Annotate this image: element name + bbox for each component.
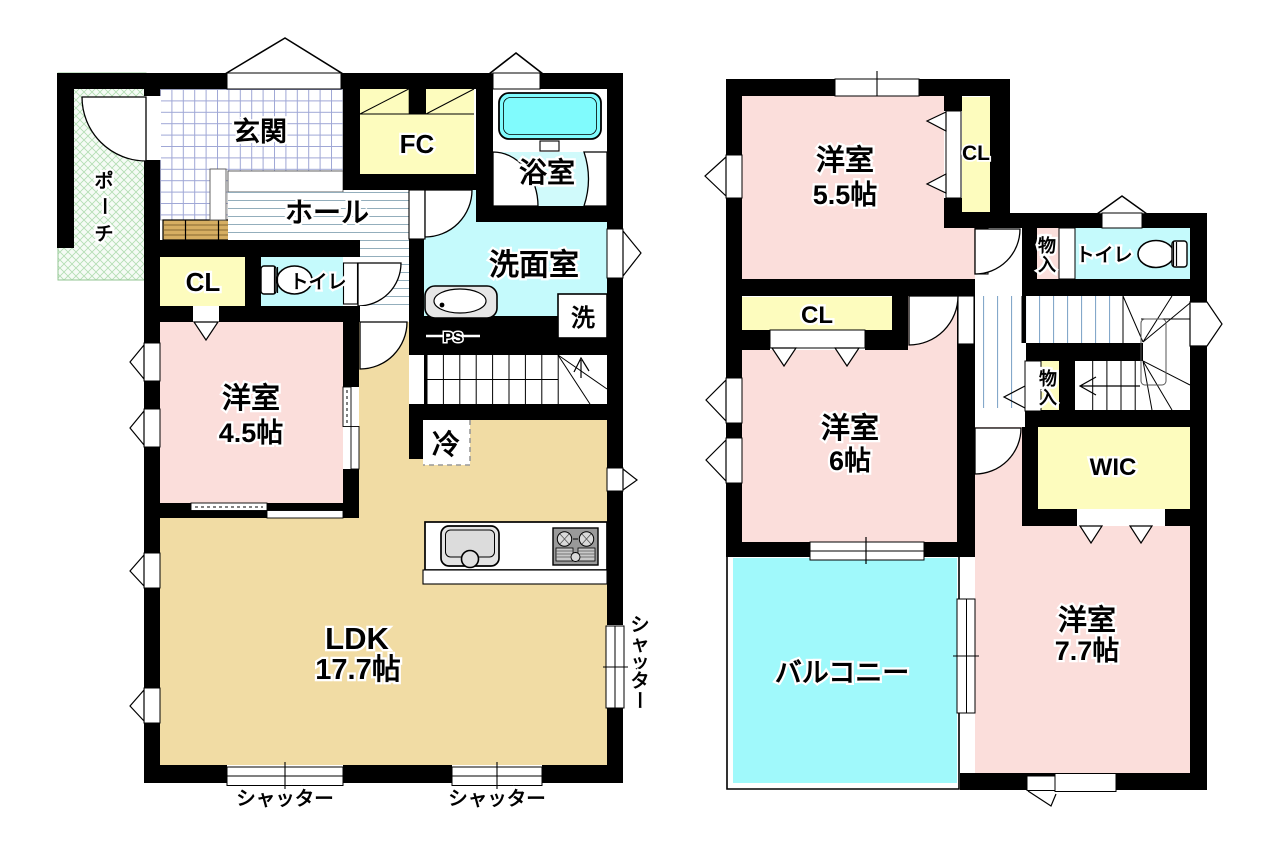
- svg-text:ホール: ホール: [285, 197, 369, 228]
- svg-text:CL: CL: [801, 302, 833, 329]
- svg-text:物: 物: [1038, 235, 1056, 256]
- svg-text:CL: CL: [186, 267, 221, 297]
- svg-text:5.5帖: 5.5帖: [813, 180, 878, 210]
- svg-text:タ: タ: [630, 670, 649, 692]
- svg-text:ー: ー: [93, 196, 114, 215]
- svg-text:FC: FC: [400, 129, 435, 159]
- svg-text:ー: ー: [628, 690, 649, 709]
- svg-text:シ: シ: [630, 615, 649, 636]
- svg-text:冷: 冷: [432, 429, 460, 460]
- svg-text:入: 入: [1039, 388, 1057, 408]
- svg-text:6帖: 6帖: [829, 446, 871, 476]
- svg-text:4.5帖: 4.5帖: [219, 418, 284, 448]
- svg-text:洋室: 洋室: [1058, 603, 1116, 637]
- svg-text:入: 入: [1038, 255, 1056, 275]
- svg-text:7.7帖: 7.7帖: [1055, 636, 1120, 666]
- svg-text:PS: PS: [443, 329, 463, 346]
- svg-text:シャッター: シャッター: [448, 788, 546, 810]
- svg-text:17.7帖: 17.7帖: [315, 653, 400, 686]
- svg-text:バルコニー: バルコニー: [775, 658, 909, 688]
- svg-text:玄関: 玄関: [233, 116, 287, 147]
- svg-text:トイレ: トイレ: [1075, 245, 1132, 266]
- svg-text:CL: CL: [962, 142, 990, 165]
- svg-text:チ: チ: [94, 224, 113, 245]
- svg-text:物: 物: [1039, 368, 1057, 389]
- svg-text:洋室: 洋室: [222, 381, 280, 415]
- svg-text:ポ: ポ: [94, 169, 113, 192]
- svg-text:洗: 洗: [571, 305, 595, 332]
- svg-text:浴室: 浴室: [519, 156, 575, 188]
- svg-text:ッ: ッ: [630, 652, 649, 673]
- svg-text:シャッター: シャッター: [236, 788, 334, 810]
- svg-text:洗面室: 洗面室: [489, 248, 579, 282]
- svg-text:LDK: LDK: [325, 621, 389, 656]
- svg-text:トイレ: トイレ: [289, 272, 346, 293]
- svg-text:洋室: 洋室: [816, 143, 874, 177]
- svg-text:洋室: 洋室: [821, 411, 879, 445]
- svg-text:WIC: WIC: [1090, 454, 1137, 481]
